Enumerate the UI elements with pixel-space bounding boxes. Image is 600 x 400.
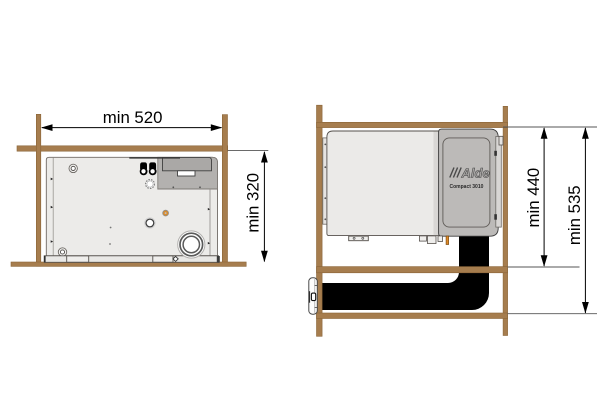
svg-text:min 440: min 440 xyxy=(524,168,543,228)
svg-text:Alde: Alde xyxy=(461,166,490,181)
svg-text:min 320: min 320 xyxy=(243,173,262,233)
svg-text:Compact 3010: Compact 3010 xyxy=(450,184,484,190)
svg-text:min 535: min 535 xyxy=(565,185,584,245)
svg-text:min 520: min 520 xyxy=(103,108,163,127)
